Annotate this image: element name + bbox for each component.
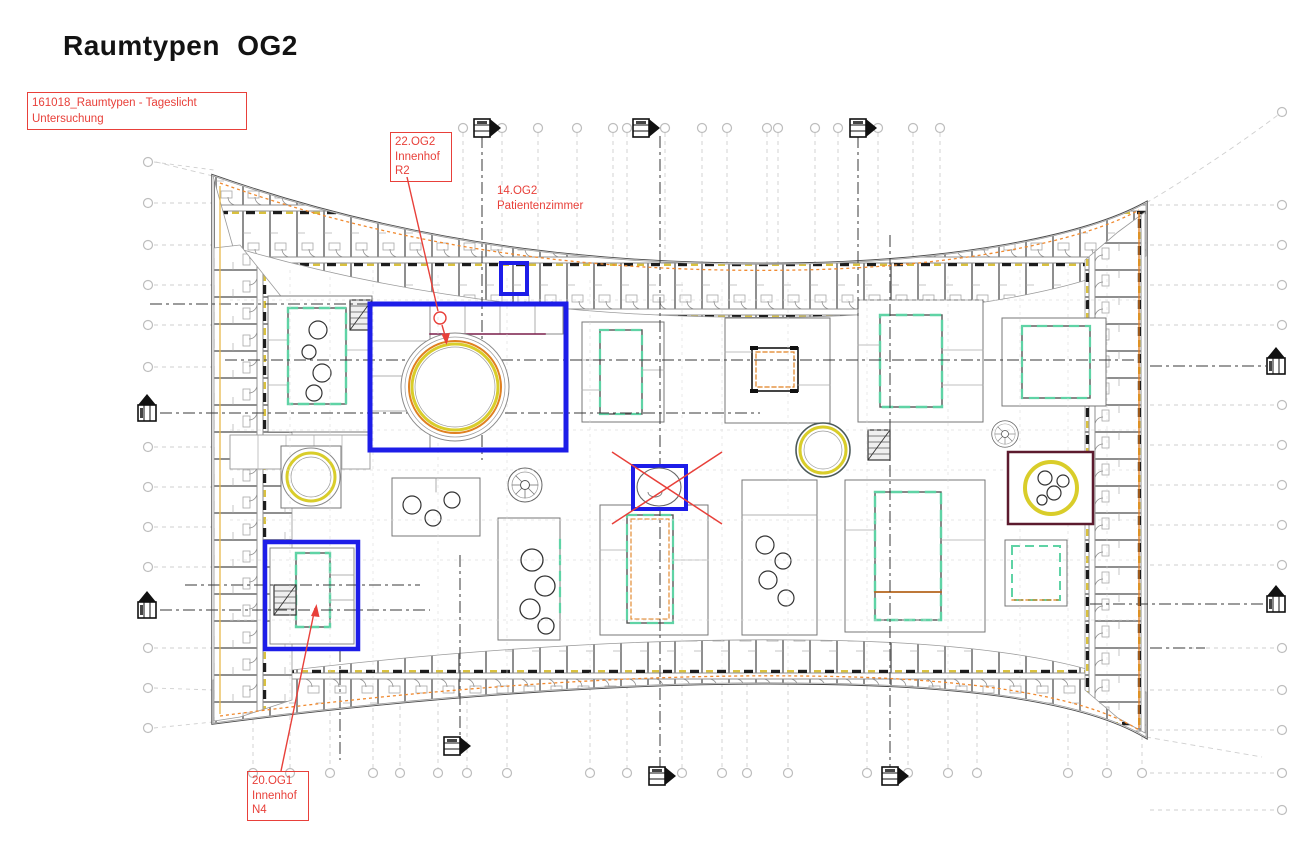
annotation-line: 20.OG1	[252, 774, 304, 789]
section-marker-icon	[850, 119, 877, 137]
annotation-line: 22.OG2	[395, 135, 447, 150]
cluster-tables	[742, 480, 817, 635]
cluster-n4-zone	[270, 548, 354, 644]
annotation-patientenzimmer: 14.OG2 Patientenzimmer	[497, 184, 583, 213]
cluster-left-core	[268, 296, 372, 432]
floorplan-page: Raumtypen OG2	[0, 0, 1300, 859]
annotation-innenhof-r2: 22.OG2 Innenhof R2	[390, 132, 452, 182]
annotation-line: 14.OG2	[497, 184, 583, 199]
annotation-line: N4	[252, 803, 304, 818]
courtyard-maroon-square	[1008, 452, 1093, 524]
annotation-innenhof-n4: 20.OG1 Innenhof N4	[247, 771, 309, 821]
spiral-stair-left	[508, 468, 542, 502]
annotation-line: R2	[395, 164, 447, 179]
courtyard-center-circle	[796, 423, 850, 477]
annotation-line: Patientenzimmer	[497, 199, 583, 214]
cluster-square-courtyard	[725, 318, 830, 423]
grid-bubbles-bottom	[249, 769, 1147, 778]
cluster-exam-1	[392, 478, 480, 536]
courtyard-left-circle	[281, 446, 341, 508]
cluster-right-small	[1005, 540, 1067, 606]
section-marker-icon	[1267, 347, 1285, 374]
section-marker-icon	[474, 119, 501, 137]
section-marker-icon	[138, 591, 156, 618]
cluster-center-tall	[600, 505, 708, 635]
stair-core-center	[868, 430, 890, 460]
cluster-mid-1	[582, 322, 664, 422]
section-marker-icon	[633, 119, 660, 137]
annotation-study-label: 161018_Raumtypen - Tageslicht Untersuchu…	[27, 92, 247, 130]
annotation-line: Innenhof	[252, 789, 304, 804]
annotation-line: 161018_Raumtypen - Tageslicht	[32, 95, 242, 111]
grid-bubbles-right	[1278, 108, 1287, 815]
section-marker-icon	[138, 394, 156, 421]
annotation-line: Untersuchung	[32, 111, 242, 127]
courtyard-r2-circle	[401, 333, 509, 441]
cluster-right-top	[1002, 318, 1106, 406]
spiral-stair-right	[992, 421, 1019, 448]
grid-bubbles-left	[144, 158, 153, 733]
section-marker-icon	[1267, 585, 1285, 612]
cluster-mid-2	[858, 300, 983, 422]
annotation-line: Innenhof	[395, 150, 447, 165]
section-marker-icon	[649, 767, 676, 785]
cluster-right-tall	[845, 480, 985, 632]
